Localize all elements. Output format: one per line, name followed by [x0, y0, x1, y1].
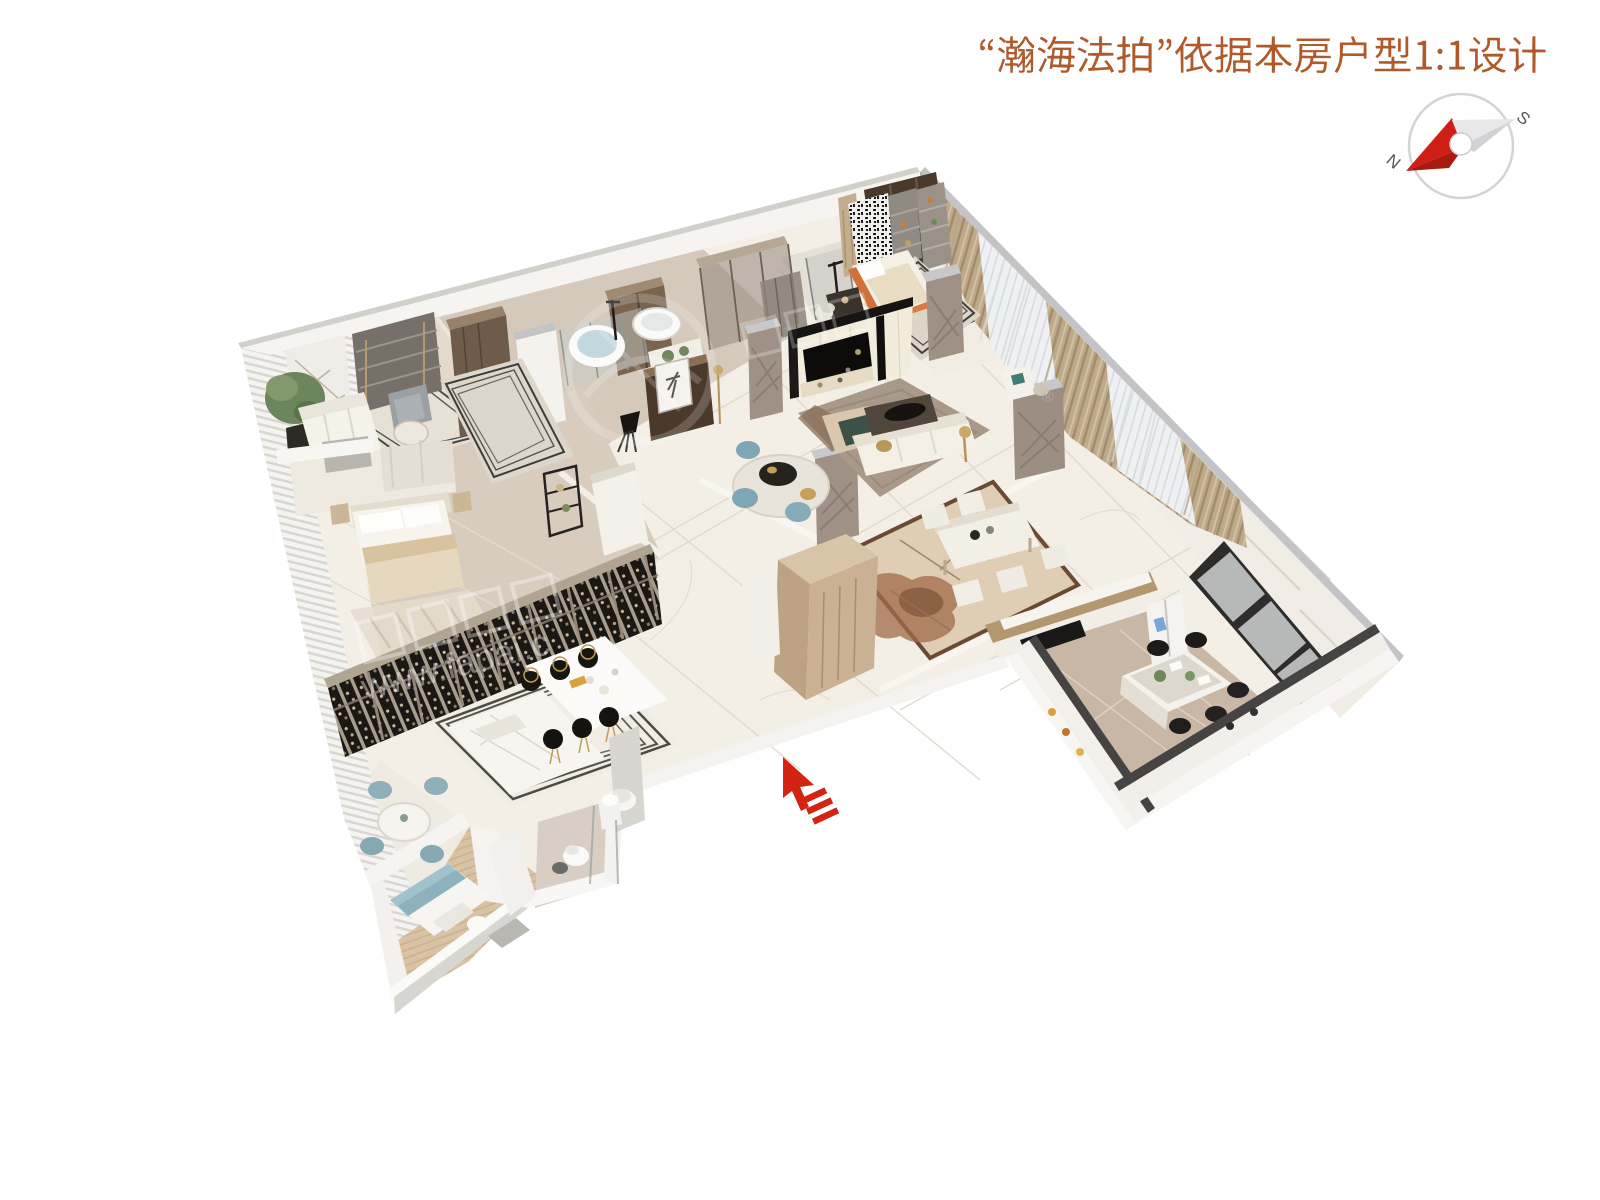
svg-text:®: ®	[1042, 389, 1054, 406]
